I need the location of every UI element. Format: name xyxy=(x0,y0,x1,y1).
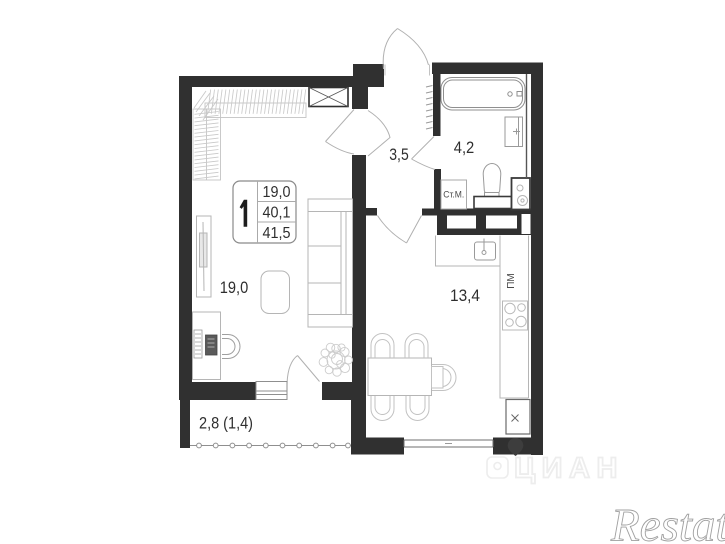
svg-text:41,5: 41,5 xyxy=(263,225,291,242)
svg-text:ПМ: ПМ xyxy=(506,273,517,289)
svg-text:2,8 (1,4): 2,8 (1,4) xyxy=(199,415,253,433)
svg-text:3,5: 3,5 xyxy=(389,145,409,164)
svg-text:19,0: 19,0 xyxy=(263,184,291,201)
svg-text:40,1: 40,1 xyxy=(263,205,291,222)
svg-text:ЦИАН: ЦИАН xyxy=(514,453,624,485)
svg-text:Ст.М.: Ст.М. xyxy=(443,190,464,200)
svg-text:4,2: 4,2 xyxy=(454,138,475,157)
svg-text:13,4: 13,4 xyxy=(450,286,480,305)
svg-text:19,0: 19,0 xyxy=(220,278,249,297)
svg-text:Restate: Restate xyxy=(610,500,725,544)
